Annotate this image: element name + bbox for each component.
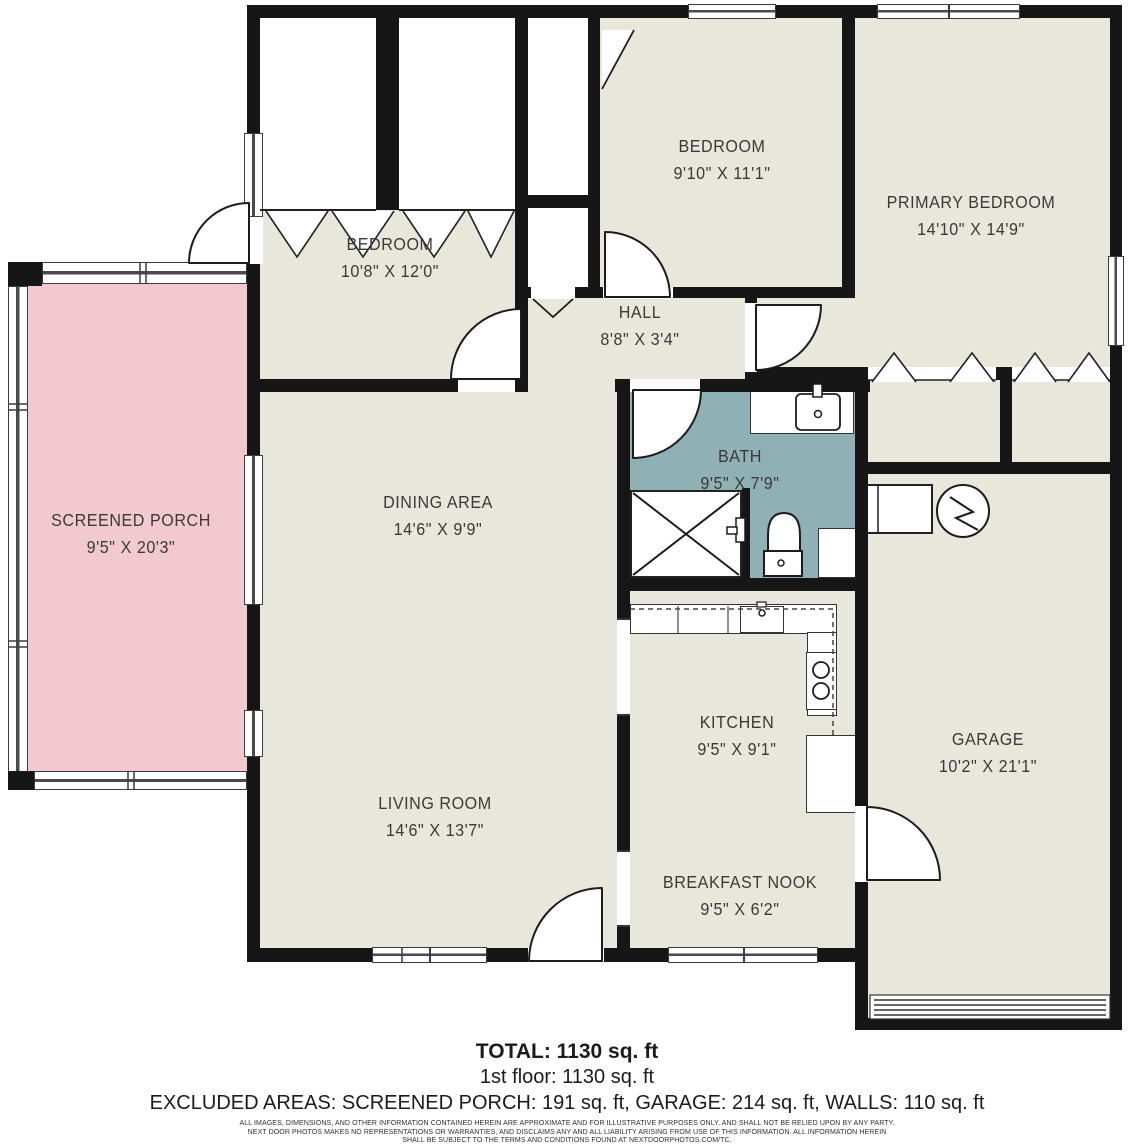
hall-closet — [528, 18, 588, 287]
room-dims: 9'5" X 20'3" — [51, 534, 211, 561]
window — [244, 710, 263, 757]
garage-floor-area — [860, 380, 1115, 1023]
room-dims: 10'2" X 21'1" — [939, 753, 1037, 780]
room-name: BATH — [700, 443, 779, 470]
window — [1108, 256, 1124, 346]
washer-icon — [866, 484, 933, 534]
room-label-garage: GARAGE 10'2" X 21'1" — [939, 726, 1037, 780]
bedroom1-closet-right — [399, 18, 515, 210]
room-name: DINING AREA — [383, 489, 493, 516]
closet-door-gap — [868, 367, 996, 380]
room-name: BREAKFAST NOOK — [663, 869, 817, 896]
window — [430, 947, 487, 963]
porch-screen — [34, 771, 247, 790]
window — [744, 947, 818, 963]
floor-plan: BEDROOM 10'8" X 12'0" BEDROOM 9'10" X 11… — [0, 0, 1134, 1146]
room-dims: 9'5" X 7'9" — [700, 470, 779, 497]
first-floor-area-text: 1st floor: 1130 sq. ft — [0, 1066, 1134, 1089]
wall — [866, 462, 1110, 474]
living-breakfast-opening — [617, 850, 630, 927]
wall — [617, 379, 630, 591]
wall — [855, 1018, 1110, 1030]
window — [688, 4, 776, 19]
total-area-text: TOTAL: 1130 sq. ft — [0, 1040, 1134, 1064]
kitchen-cabinet — [806, 735, 857, 813]
window — [668, 947, 744, 963]
room-name: BEDROOM — [341, 231, 439, 258]
room-dims: 8'8" X 3'4" — [600, 326, 679, 353]
room-name: KITCHEN — [697, 709, 776, 736]
window — [244, 133, 263, 217]
kitchen-sink-icon — [740, 606, 784, 633]
room-name: BEDROOM — [674, 133, 771, 160]
hall-closet-opening — [531, 287, 575, 299]
disclaimer-line-1: ALL IMAGES, DIMENSIONS, AND OTHER INFORM… — [0, 1120, 1134, 1129]
bathroom-sink-counter — [750, 388, 854, 434]
porch-screen — [8, 286, 28, 773]
porch-screen — [42, 262, 247, 284]
room-dims: 14'6" X 13'7" — [378, 817, 491, 844]
room-label-living-room: LIVING ROOM 14'6" X 13'7" — [378, 790, 491, 844]
room-name: PRIMARY BEDROOM — [887, 189, 1056, 216]
porch-door-swing — [189, 203, 249, 263]
room-name: LIVING ROOM — [378, 790, 491, 817]
disclaimer-line-2: NEXT DOOR PHOTOS MAKES NO REPRESENTATION… — [0, 1129, 1134, 1138]
room-dims: 9'5" X 6'2" — [663, 896, 817, 923]
room-label-screened-porch: SCREENED PORCH 9'5" X 20'3" — [51, 507, 211, 561]
excluded-areas-text: EXCLUDED AREAS: SCREENED PORCH: 191 sq. … — [0, 1092, 1134, 1115]
wall — [742, 488, 750, 578]
primary-door-gap — [745, 303, 757, 372]
wall — [588, 18, 600, 298]
wall — [842, 18, 855, 298]
bedroom1-door-gap — [458, 379, 515, 392]
dining-kitchen-opening — [617, 618, 630, 716]
front-door-gap — [528, 948, 604, 962]
room-name: SCREENED PORCH — [51, 507, 211, 534]
window — [877, 4, 949, 19]
window — [949, 4, 1020, 19]
room-label-bath: BATH 9'5" X 7'9" — [700, 443, 779, 497]
kitchen-counter-top — [630, 604, 837, 634]
room-dims: 10'8" X 12'0" — [341, 258, 439, 285]
room-dims: 14'10" X 14'9" — [887, 216, 1056, 243]
bath-door-gap — [630, 379, 700, 392]
disclaimer-line-3: SHALL BE SUBJECT TO THE TERMS AND CONDIT… — [0, 1137, 1134, 1146]
wall — [515, 5, 528, 392]
window — [244, 455, 263, 605]
wall — [855, 379, 868, 1030]
wall — [247, 379, 458, 392]
closet-door-gap — [1012, 367, 1110, 380]
room-label-kitchen: KITCHEN 9'5" X 9'1" — [697, 709, 776, 763]
bedroom1-closet-left — [260, 18, 376, 210]
wall — [528, 195, 588, 208]
bedroom2-door-gap — [603, 287, 673, 299]
porch-post — [8, 771, 34, 790]
room-name: HALL — [600, 299, 679, 326]
room-label-bedroom2: BEDROOM 9'10" X 11'1" — [674, 133, 771, 187]
wall — [1000, 380, 1012, 462]
room-dims: 9'5" X 9'1" — [697, 736, 776, 763]
window — [372, 947, 430, 963]
room-name: GARAGE — [939, 726, 1037, 753]
wall — [617, 578, 868, 591]
room-label-bedroom1: BEDROOM 10'8" X 12'0" — [341, 231, 439, 285]
porch-post — [8, 262, 42, 286]
wall — [1110, 5, 1122, 1030]
porch-door-gap — [244, 216, 263, 264]
room-label-primary-bedroom: PRIMARY BEDROOM 14'10" X 14'9" — [887, 189, 1056, 243]
room-dims: 9'10" X 11'1" — [674, 160, 771, 187]
room-dims: 14'6" X 9'9" — [383, 516, 493, 543]
disclaimer-text: ALL IMAGES, DIMENSIONS, AND OTHER INFORM… — [0, 1120, 1134, 1146]
room-label-dining-area: DINING AREA 14'6" X 9'9" — [383, 489, 493, 543]
bath-cabinet — [818, 528, 857, 578]
wall — [376, 5, 399, 210]
shower-icon — [630, 490, 742, 578]
room-label-breakfast-nook: BREAKFAST NOOK 9'5" X 6'2" — [663, 869, 817, 923]
room-label-hall: HALL 8'8" X 3'4" — [600, 299, 679, 353]
garage-entry-door-gap — [855, 806, 868, 882]
stove-icon — [806, 652, 837, 710]
